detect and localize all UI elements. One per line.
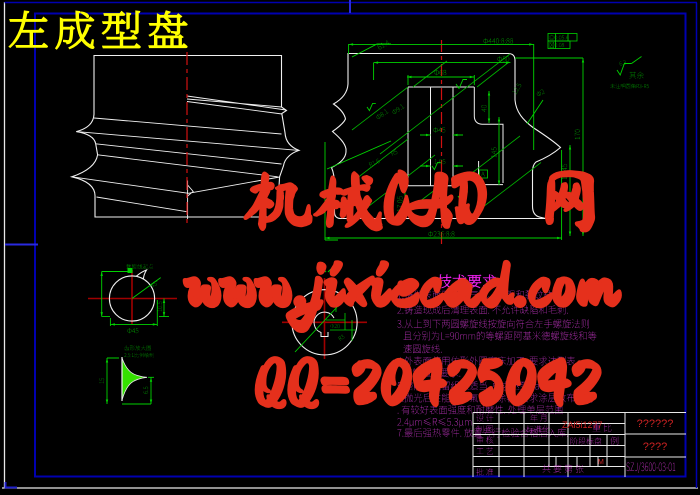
svg-text:M: M bbox=[598, 459, 604, 466]
svg-text:????: ???? bbox=[643, 441, 667, 453]
svg-text:ZAl5i1277: ZAl5i1277 bbox=[562, 420, 603, 430]
svg-text:??????: ?????? bbox=[637, 418, 674, 430]
